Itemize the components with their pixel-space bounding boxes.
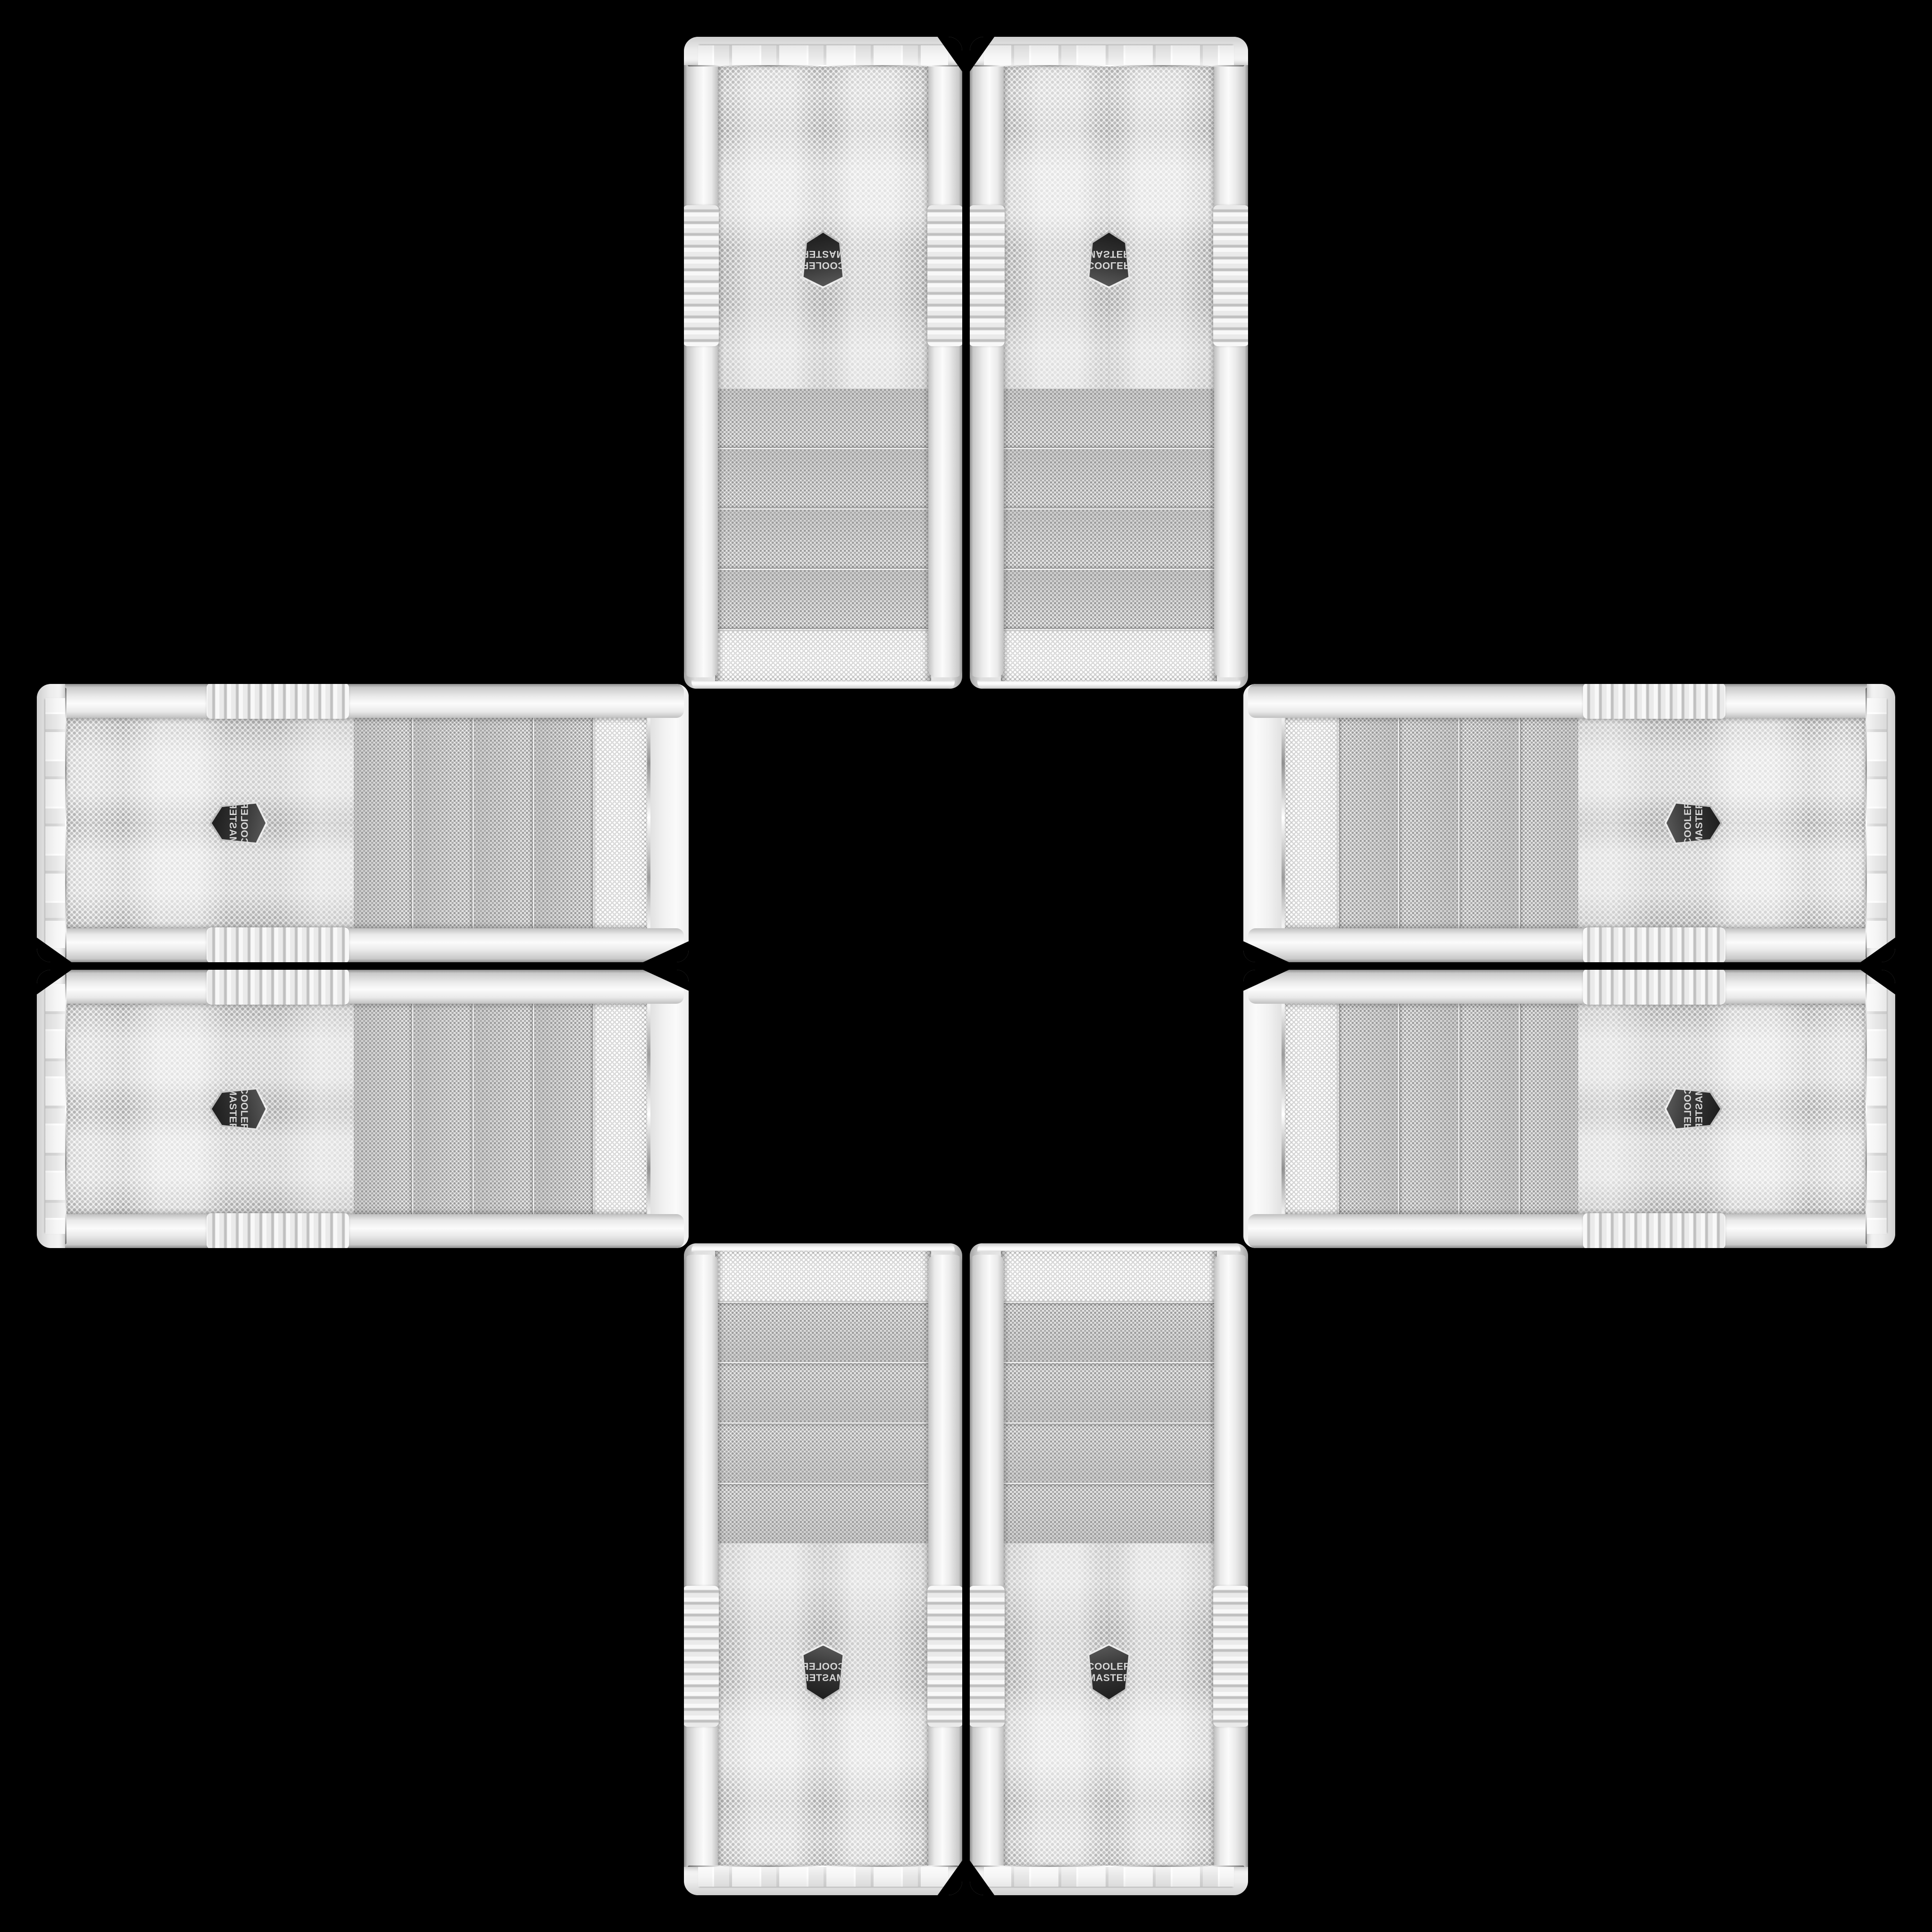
rail-grip-ribs	[207, 684, 349, 719]
fan-intake-mesh: COOLER MASTER	[66, 715, 354, 931]
top-cover-front-band	[647, 970, 689, 1248]
drive-bay-cover	[715, 1483, 931, 1543]
logo-text-line2: MASTER	[1694, 1087, 1705, 1131]
rail-grip-ribs	[684, 1586, 719, 1727]
embossed-vent-strip	[1001, 1251, 1217, 1302]
cap-tab-row	[45, 984, 65, 1234]
logo-text-line2: MASTER	[1087, 249, 1131, 259]
cap-tab-row	[698, 45, 948, 65]
drive-bay-covers	[715, 1302, 931, 1543]
cooler-master-logo-icon: COOLER MASTER	[1666, 1087, 1720, 1131]
fan-intake-mesh: COOLER MASTER	[1578, 715, 1866, 931]
fan-intake-mesh: COOLER MASTER	[66, 1001, 354, 1217]
cooler-master-logo-badge: COOLER MASTER	[210, 1085, 267, 1133]
drive-bay-cover	[715, 1362, 931, 1423]
rail-grip-ribs	[927, 205, 962, 346]
drive-bay-cover	[534, 715, 594, 931]
cooler-master-logo-badge: COOLER MASTER	[1665, 799, 1722, 847]
drive-bay-covers	[1338, 1001, 1579, 1217]
rail-grip-ribs	[927, 1586, 962, 1727]
drive-bay-cover	[1338, 1001, 1398, 1217]
cooler-master-logo-icon: COOLER MASTER	[1087, 1646, 1131, 1699]
case-panel-right-top: COOLER MASTER	[1243, 684, 1895, 962]
drive-bay-cover	[1458, 715, 1519, 931]
logo-text-line1: COOLER	[1087, 260, 1131, 271]
logo-text-line1: COOLER	[1682, 801, 1693, 845]
mesh-area: COOLER MASTER	[1001, 1251, 1217, 1866]
bottom-cap	[970, 37, 1248, 65]
mesh-area: COOLER MASTER	[1285, 1001, 1866, 1217]
rail-grip-ribs	[970, 1586, 1005, 1727]
drive-bay-cover	[1001, 1483, 1217, 1543]
cooler-master-logo-badge: COOLER MASTER	[1085, 1644, 1133, 1701]
drive-bay-covers	[353, 1001, 594, 1217]
bottom-cap	[684, 1867, 962, 1895]
scene: COOLER MASTER	[0, 0, 1932, 1932]
logo-text-line2: MASTER	[801, 249, 845, 259]
logo-text-line2: MASTER	[1694, 801, 1705, 845]
rail-grip-ribs	[207, 970, 349, 1005]
cap-tab-row	[698, 1867, 948, 1887]
cap-tab-row	[45, 698, 65, 948]
side-rail-right	[64, 1214, 684, 1248]
front-panel-top-lip	[691, 680, 955, 689]
drive-bay-cover	[715, 389, 931, 449]
bottom-cap	[1867, 684, 1895, 962]
side-rail-right	[684, 1255, 718, 1868]
mesh-area: COOLER MASTER	[1001, 66, 1217, 681]
top-cover-front-band	[647, 684, 689, 962]
mesh-area: COOLER MASTER	[715, 66, 931, 681]
drive-bay-cover	[1519, 715, 1579, 931]
rail-grip-ribs	[207, 1213, 349, 1248]
drive-bay-covers	[1001, 389, 1217, 630]
logo-text-line1: COOLER	[1682, 1087, 1693, 1131]
drive-bay-cover	[413, 1001, 474, 1217]
embossed-vent-strip	[1285, 715, 1338, 931]
side-rail-left	[928, 64, 962, 677]
fan-intake-mesh: COOLER MASTER	[1001, 1543, 1217, 1866]
fan-intake-mesh: COOLER MASTER	[715, 66, 931, 389]
embossed-vent-strip	[715, 1251, 931, 1302]
side-rail-right	[1214, 1255, 1248, 1868]
front-panel-top-lip	[977, 680, 1241, 689]
drive-bay-cover	[1001, 1423, 1217, 1483]
mesh-area: COOLER MASTER	[1285, 715, 1866, 931]
rail-grip-ribs	[1583, 927, 1725, 962]
bottom-cap	[37, 970, 65, 1248]
mesh-area: COOLER MASTER	[66, 1001, 647, 1217]
top-cover-front-band	[1243, 684, 1285, 962]
cooler-master-logo-badge: COOLER MASTER	[1665, 1085, 1722, 1133]
side-rail-left	[64, 970, 684, 1004]
side-rail-left	[1248, 928, 1868, 962]
side-rail-left	[928, 1255, 962, 1868]
cap-tab-row	[984, 1867, 1234, 1887]
logo-text-line1: COOLER	[801, 1661, 845, 1672]
logo-text-line1: COOLER	[801, 260, 845, 271]
rail-grip-ribs	[1213, 205, 1248, 346]
cooler-master-logo-badge: COOLER MASTER	[799, 1644, 847, 1701]
rail-grip-ribs	[970, 205, 1005, 346]
rail-grip-ribs	[1213, 1586, 1248, 1727]
case-panel-bottom-left: COOLER MASTER	[684, 1243, 962, 1895]
cap-tab-row	[1867, 984, 1887, 1234]
cooler-master-logo-badge: COOLER MASTER	[210, 799, 267, 847]
drive-bay-cover	[715, 1302, 931, 1362]
mesh-area: COOLER MASTER	[715, 1251, 931, 1866]
drive-bay-cover	[1001, 449, 1217, 509]
embossed-vent-strip	[594, 1001, 647, 1217]
embossed-vent-strip	[715, 630, 931, 681]
cooler-master-logo-badge: COOLER MASTER	[1085, 231, 1133, 288]
bottom-cap	[1867, 970, 1895, 1248]
embossed-vent-strip	[1001, 630, 1217, 681]
drive-bay-cover	[715, 509, 931, 570]
drive-bay-cover	[413, 715, 474, 931]
bottom-cap	[37, 684, 65, 962]
cooler-master-logo-badge: COOLER MASTER	[799, 231, 847, 288]
drive-bay-cover	[534, 1001, 594, 1217]
case-panel-top-left: COOLER MASTER	[684, 37, 962, 689]
rail-grip-ribs	[207, 927, 349, 962]
side-rail-right	[1248, 1214, 1868, 1248]
bottom-cap	[970, 1867, 1248, 1895]
embossed-vent-strip	[594, 715, 647, 931]
case-panel-bottom-right: COOLER MASTER	[970, 1243, 1248, 1895]
side-rail-left	[64, 928, 684, 962]
cooler-master-logo-icon: COOLER MASTER	[212, 1087, 266, 1131]
drive-bay-cover	[1398, 715, 1458, 931]
cap-tab-row	[984, 45, 1234, 65]
cooler-master-logo-icon: COOLER MASTER	[801, 1646, 845, 1699]
drive-bay-cover	[715, 449, 931, 509]
drive-bay-cover	[1001, 509, 1217, 570]
cap-tab-row	[1867, 698, 1887, 948]
drive-bay-cover	[1001, 570, 1217, 630]
fan-intake-mesh: COOLER MASTER	[1578, 1001, 1866, 1217]
drive-bay-covers	[1001, 1302, 1217, 1543]
drive-bay-cover	[1001, 1302, 1217, 1362]
fan-intake-mesh: COOLER MASTER	[1001, 66, 1217, 389]
bottom-cap	[684, 37, 962, 65]
case-panel-left-bottom: COOLER MASTER	[37, 970, 689, 1248]
embossed-vent-strip	[1285, 1001, 1338, 1217]
case-panel-left-top: COOLER MASTER	[37, 684, 689, 962]
top-cover-front-band	[1243, 970, 1285, 1248]
cooler-master-logo-icon: COOLER MASTER	[212, 801, 266, 845]
drive-bay-cover	[715, 570, 931, 630]
drive-bay-cover	[474, 1001, 534, 1217]
mesh-area: COOLER MASTER	[66, 715, 647, 931]
logo-text-line2: MASTER	[228, 801, 239, 845]
rail-grip-ribs	[1583, 970, 1725, 1005]
drive-bay-covers	[1338, 715, 1579, 931]
cooler-master-logo-icon: COOLER MASTER	[801, 233, 845, 286]
side-rail-right	[684, 64, 718, 677]
case-panel-right-bottom: COOLER MASTER	[1243, 970, 1895, 1248]
drive-bay-covers	[715, 389, 931, 630]
side-rail-right	[1248, 684, 1868, 718]
logo-text-line2: MASTER	[801, 1673, 845, 1683]
side-rail-left	[970, 64, 1004, 677]
drive-bay-cover	[474, 715, 534, 931]
drive-bay-cover	[1519, 1001, 1579, 1217]
logo-text-line1: COOLER	[1087, 1661, 1131, 1672]
drive-bay-cover	[1001, 1362, 1217, 1423]
side-rail-right	[64, 684, 684, 718]
side-rail-left	[970, 1255, 1004, 1868]
drive-bay-cover	[1458, 1001, 1519, 1217]
side-rail-right	[1214, 64, 1248, 677]
rail-grip-ribs	[1583, 684, 1725, 719]
cooler-master-logo-icon: COOLER MASTER	[1087, 233, 1131, 286]
rail-grip-ribs	[1583, 1213, 1725, 1248]
drive-bay-cover	[353, 715, 413, 931]
drive-bay-cover	[353, 1001, 413, 1217]
drive-bay-cover	[1398, 1001, 1458, 1217]
fan-intake-mesh: COOLER MASTER	[715, 1543, 931, 1866]
rail-grip-ribs	[684, 205, 719, 346]
cooler-master-logo-icon: COOLER MASTER	[1666, 801, 1720, 845]
drive-bay-cover	[1338, 715, 1398, 931]
case-panel-top-right: COOLER MASTER	[970, 37, 1248, 689]
drive-bay-cover	[715, 1423, 931, 1483]
drive-bay-covers	[353, 715, 594, 931]
drive-bay-cover	[1001, 389, 1217, 449]
logo-text-line2: MASTER	[1087, 1673, 1131, 1683]
side-rail-left	[1248, 970, 1868, 1004]
logo-text-line1: COOLER	[239, 1087, 250, 1131]
logo-text-line1: COOLER	[239, 801, 250, 845]
logo-text-line2: MASTER	[228, 1087, 239, 1131]
